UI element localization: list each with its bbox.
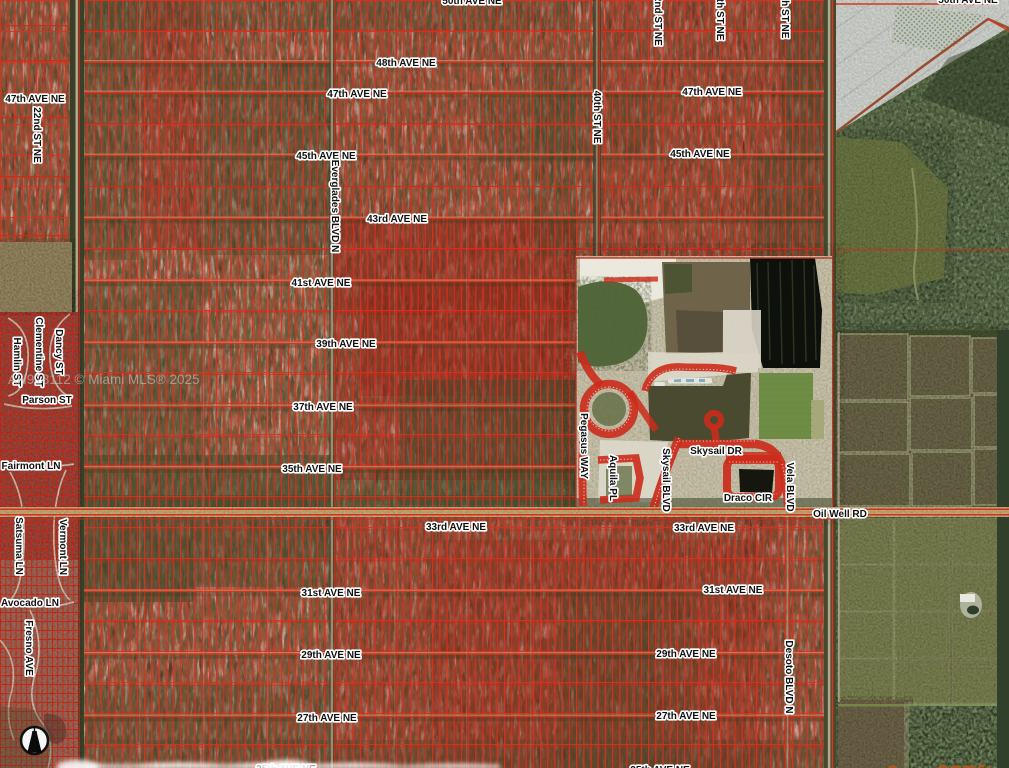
svg-text:29th AVE NE: 29th AVE NE [656, 649, 716, 660]
svg-text:27th AVE NE: 27th AVE NE [297, 713, 357, 724]
svg-text:45th AVE NE: 45th AVE NE [296, 151, 356, 162]
svg-text:29th AVE NE: 29th AVE NE [301, 650, 361, 661]
svg-text:31st AVE NE: 31st AVE NE [302, 588, 361, 599]
svg-text:47th AVE NE: 47th AVE NE [5, 94, 65, 105]
svg-text:50th AVE NE: 50th AVE NE [938, 0, 998, 6]
svg-text:Vermont LN: Vermont LN [57, 519, 68, 575]
svg-text:42nd ST NE: 42nd ST NE [652, 0, 663, 46]
svg-text:Fairmont LN: Fairmont LN [2, 461, 61, 472]
svg-text:27th AVE NE: 27th AVE NE [656, 711, 716, 722]
svg-text:35th AVE NE: 35th AVE NE [282, 464, 342, 475]
svg-text:40th ST NE: 40th ST NE [591, 91, 602, 144]
svg-text:37th AVE NE: 37th AVE NE [293, 402, 353, 413]
svg-text:33rd AVE NE: 33rd AVE NE [674, 523, 734, 534]
svg-text:Pegasus WAY: Pegasus WAY [578, 413, 589, 479]
svg-text:Fresno AVE: Fresno AVE [23, 620, 34, 676]
svg-text:Satsuma LN: Satsuma LN [13, 517, 24, 575]
svg-text:Dancy ST: Dancy ST [53, 329, 64, 375]
svg-text:255ft: 255ft [936, 761, 992, 768]
svg-text:46th ST NE: 46th ST NE [779, 0, 790, 39]
svg-text:Draco CIR: Draco CIR [724, 493, 773, 504]
svg-text:Aquila PL: Aquila PL [607, 455, 618, 501]
svg-text:47th AVE NE: 47th AVE NE [327, 89, 387, 100]
svg-text:Everglades BLVD N: Everglades BLVD N [329, 160, 340, 253]
svg-text:48th AVE NE: 48th AVE NE [376, 58, 436, 69]
svg-text:Oil Well RD: Oil Well RD [813, 509, 867, 520]
svg-text:45th AVE NE: 45th AVE NE [670, 149, 730, 160]
svg-text:50th AVE NE: 50th AVE NE [442, 0, 502, 7]
svg-text:22nd ST NE: 22nd ST NE [31, 107, 42, 163]
svg-text:43rd AVE NE: 43rd AVE NE [367, 214, 427, 225]
svg-text:Parson ST: Parson ST [22, 395, 71, 406]
svg-text:41st AVE NE: 41st AVE NE [292, 278, 351, 289]
svg-text:47th AVE NE: 47th AVE NE [682, 87, 742, 98]
svg-text:31st AVE NE: 31st AVE NE [704, 585, 763, 596]
svg-text:39th AVE NE: 39th AVE NE [316, 339, 376, 350]
svg-text:Skysail DR: Skysail DR [690, 446, 742, 457]
svg-text:Desoto BLVD N: Desoto BLVD N [783, 640, 794, 713]
svg-text:0: 0 [886, 761, 899, 768]
svg-text:Vela BLVD: Vela BLVD [784, 462, 795, 511]
svg-text:AH918112 © Miami MLS® 2025: AH918112 © Miami MLS® 2025 [8, 372, 200, 387]
svg-text:Avocado LN: Avocado LN [1, 598, 59, 609]
svg-text:Skysail BLVD: Skysail BLVD [660, 448, 671, 512]
svg-text:44th ST NE: 44th ST NE [714, 0, 725, 41]
svg-text:33rd AVE NE: 33rd AVE NE [426, 522, 486, 533]
